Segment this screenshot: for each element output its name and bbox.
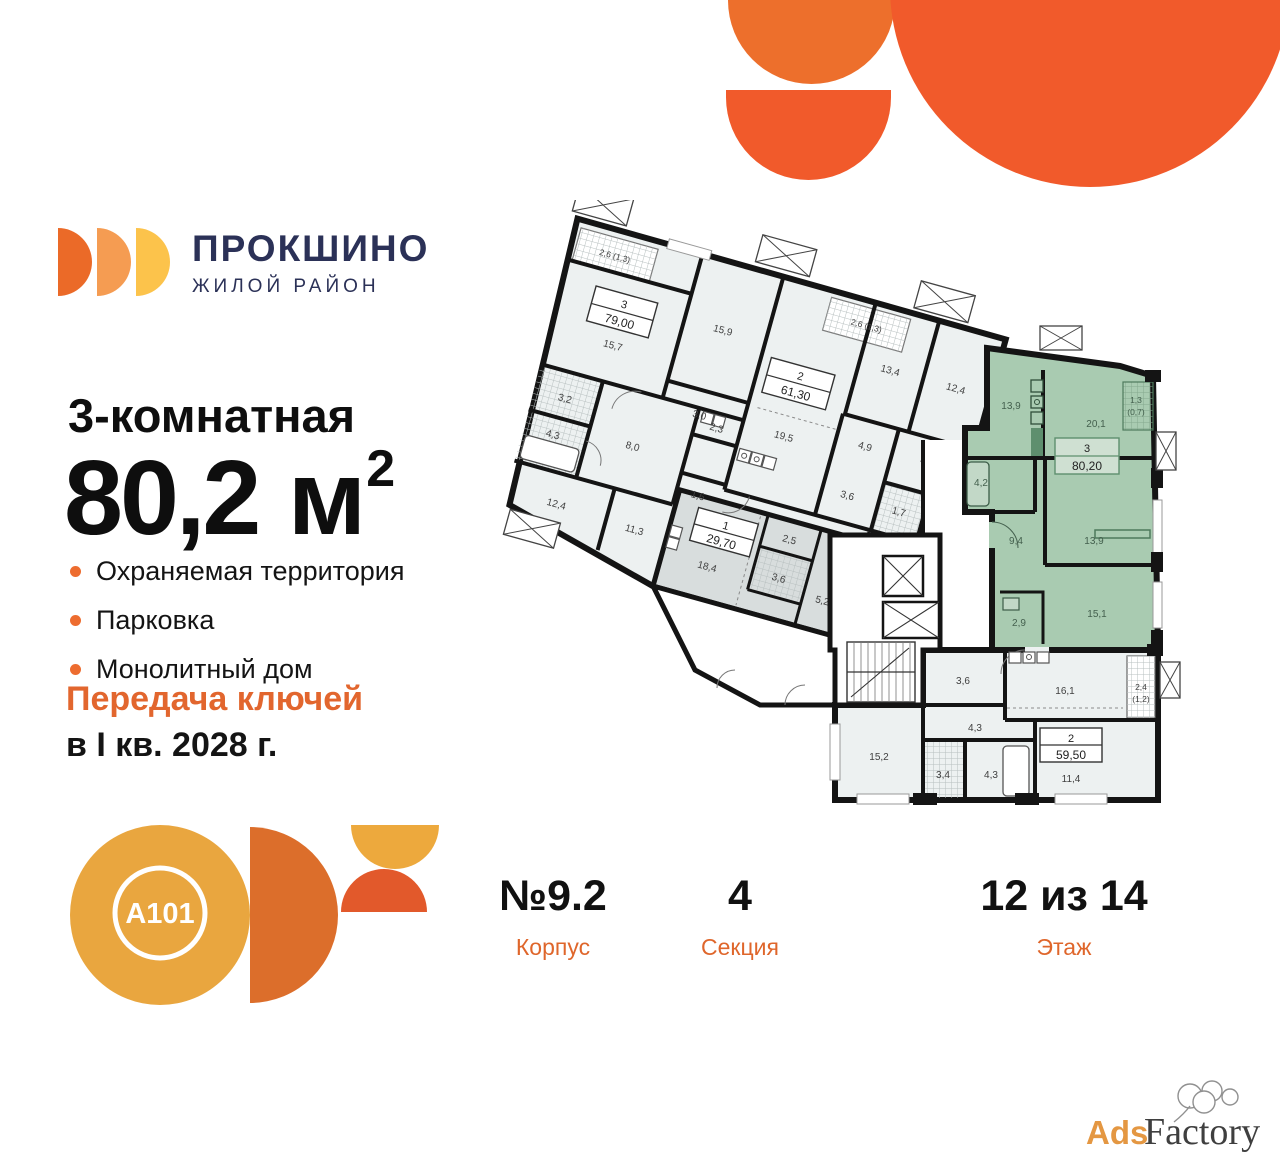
room-label: 16,1 [1055, 686, 1075, 697]
rooms-title: 3-комнатная [68, 388, 355, 443]
cloud-icon [1178, 1081, 1238, 1113]
area-unit: м [258, 439, 366, 557]
info-floor: 12 из 14 Этаж [944, 872, 1184, 961]
room-label: 4,2 [974, 478, 988, 489]
flyer-page: ПРОКШИНО ЖИЛОЙ РАЙОН 3-комнатная 80,2 м2… [0, 0, 1280, 1160]
room-label: 15,1 [1087, 609, 1107, 620]
svg-text:80,20: 80,20 [1072, 459, 1102, 473]
section-label: Секция [640, 934, 840, 961]
info-building: №9.2 Корпус [453, 872, 653, 961]
building-core [830, 535, 940, 705]
brand-crescents-icon [58, 228, 170, 296]
feature-label: Парковка [96, 605, 214, 636]
decor-circle-large-icon [890, 0, 1280, 187]
area-line: 80,2 м2 [64, 438, 395, 559]
room-label: (0,7) [1127, 407, 1145, 417]
brand-name: ПРОКШИНО [192, 230, 429, 267]
building-value: №9.2 [453, 872, 653, 921]
watermark-ads: Ads [1086, 1114, 1148, 1151]
floor-label: Этаж [944, 934, 1184, 961]
room-label: 11,4 [1062, 774, 1081, 785]
section-value: 4 [640, 872, 840, 921]
room-label: 2,4 [1135, 682, 1147, 692]
staircase [847, 642, 915, 702]
brand-tagline: ЖИЛОЙ РАЙОН [192, 276, 429, 298]
svg-text:2: 2 [1068, 733, 1074, 745]
room-label: 9,4 [1009, 536, 1023, 547]
apartment-59-label: 2 59,50 [1040, 728, 1102, 762]
feature-item: Парковка [70, 605, 404, 636]
room-label: 13,9 [1001, 401, 1021, 412]
developer-logo: A101 [55, 820, 445, 1015]
info-section: 4 Секция [640, 872, 840, 961]
watermark: Ads Factory [1078, 1080, 1278, 1155]
room-label: 20,1 [1086, 419, 1106, 430]
room-label: 15,2 [869, 752, 889, 763]
brand-logo: ПРОКШИНО ЖИЛОЙ РАЙОН [58, 228, 429, 298]
keys-handover-line2: в I кв. 2028 г. [66, 726, 277, 765]
svg-text:3: 3 [1084, 443, 1090, 455]
apartment-80-highlighted: 3 80,20 13,9 20,1 1,3 (0,7) 4,2 9,4 13,9… [965, 348, 1163, 650]
feature-label: Охраняемая территория [96, 556, 404, 587]
apartment-80-label: 3 80,20 [1055, 438, 1119, 474]
keys-handover-line1: Передача ключей [66, 680, 363, 719]
room-label: 4,3 [984, 770, 998, 781]
room-label: 13,9 [1084, 536, 1104, 547]
room-label: 3,6 [956, 676, 970, 687]
room-label: 3,4 [936, 770, 950, 781]
watermark-factory: Factory [1144, 1111, 1260, 1153]
developer-logo-text: A101 [125, 898, 194, 930]
room-label: 4,3 [968, 723, 982, 734]
bullet-icon [70, 615, 81, 626]
area-value: 80,2 [64, 439, 258, 557]
feature-item: Охраняемая территория [70, 556, 404, 587]
area-superscript: 2 [366, 440, 395, 498]
decor-semicircle-small-icon [728, 0, 895, 84]
bullet-icon [70, 566, 81, 577]
room-label: 1,3 [1130, 395, 1142, 405]
svg-text:59,50: 59,50 [1056, 748, 1086, 762]
room-label: (1,2) [1132, 694, 1150, 704]
building-label: Корпус [453, 934, 653, 961]
floor-value: 12 из 14 [944, 872, 1184, 921]
bullet-icon [70, 664, 81, 675]
room-label: 2,9 [1012, 618, 1026, 629]
floor-plan: 3 79,00 2 61,30 1 29,70 2,6 (1,3) 15,7 1… [495, 200, 1195, 820]
decor-semicircle-medium-icon [726, 90, 891, 180]
